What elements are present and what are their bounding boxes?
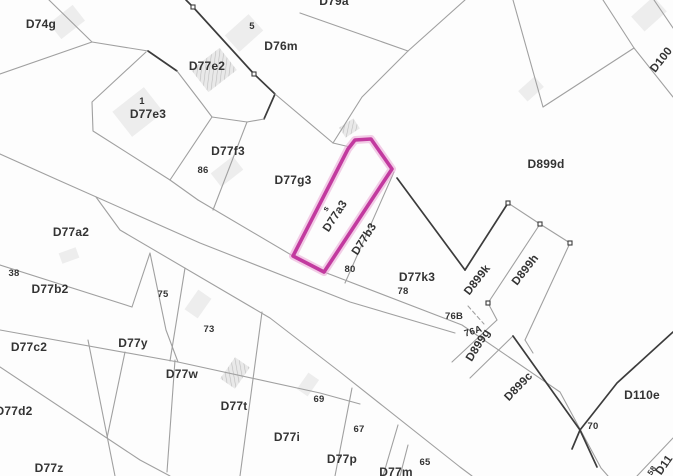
parcel-label-D77a2: D77a2 — [53, 225, 89, 239]
parcel-label-D77c2: D77c2 — [11, 340, 47, 354]
parcel-label-D77b2: D77b2 — [31, 282, 68, 296]
parcel-label-67: 67 — [354, 424, 365, 435]
parcel-label-D76m: D76m — [264, 39, 297, 53]
parcel-label-1: 1 — [139, 96, 145, 107]
boundary-corner-marker — [486, 301, 490, 305]
parcel-label-D74g: D74g — [26, 17, 56, 31]
parcel-label-D77d2: D77d2 — [0, 404, 33, 418]
parcel-label-D899d: D899d — [527, 157, 564, 171]
parcel-label-D77t: D77t — [221, 399, 248, 413]
parcel-label-D77z: D77z — [35, 461, 64, 475]
parcel-label-D77m: D77m — [379, 465, 412, 476]
cadastral-map: D74gD79a5D76mD77e21D77e3D77f386D77g3D899… — [0, 0, 673, 476]
boundary-corner-marker — [568, 241, 572, 245]
parcel-label-65: 65 — [420, 457, 431, 468]
parcel-label-D110e: D110e — [624, 388, 660, 402]
boundary-corner-marker — [538, 222, 542, 226]
parcel-label-76B: 76B — [445, 311, 463, 322]
parcel-label-75: 75 — [158, 289, 169, 300]
parcel-label-D79a: D79a — [319, 0, 349, 8]
parcel-label-73: 73 — [204, 324, 215, 335]
parcel-label-D77f3: D77f3 — [211, 144, 245, 158]
parcel-label-80: 80 — [345, 264, 356, 275]
boundary-corner-marker — [252, 72, 256, 76]
parcel-label-38: 38 — [9, 268, 20, 279]
parcel-label-D77e2: D77e2 — [189, 59, 225, 73]
parcel-label-70: 70 — [588, 421, 599, 432]
parcel-label-5: 5 — [249, 21, 255, 32]
parcel-label-D77i: D77i — [274, 430, 300, 444]
boundary-corner-marker — [506, 201, 510, 205]
parcel-label-D77p: D77p — [327, 452, 357, 466]
parcel-label-D77g3: D77g3 — [274, 173, 311, 187]
parcel-label-86: 86 — [198, 165, 209, 176]
boundary-corner-marker — [191, 5, 195, 9]
parcel-label-D77w: D77w — [166, 367, 199, 381]
parcel-label-D77k3: D77k3 — [399, 270, 435, 284]
map-canvas: D74gD79a5D76mD77e21D77e3D77f386D77g3D899… — [0, 0, 673, 476]
parcel-label-69: 69 — [314, 394, 325, 405]
parcel-label-D77e3: D77e3 — [130, 107, 166, 121]
parcel-label-78: 78 — [398, 286, 409, 297]
parcel-label-D77y: D77y — [118, 336, 148, 350]
